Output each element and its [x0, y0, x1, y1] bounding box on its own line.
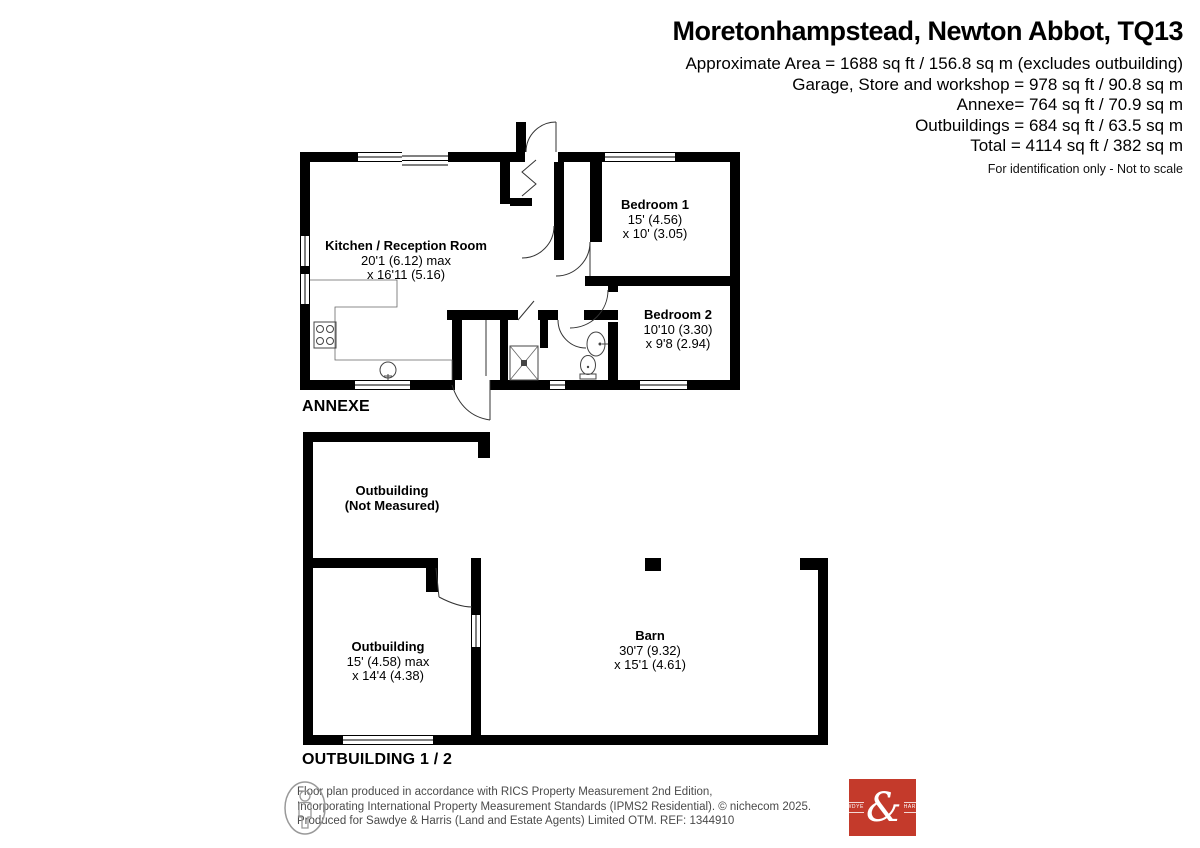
barn-name: Barn — [635, 628, 665, 643]
footer: Floor plan produced in accordance with R… — [283, 779, 811, 829]
area-line-total: Total = 4114 sq ft / 382 sq m — [672, 136, 1183, 157]
page-title: Moretonhampstead, Newton Abbot, TQ13 — [672, 16, 1183, 46]
person-icon — [283, 779, 329, 837]
bedroom2-name: Bedroom 2 — [644, 307, 712, 322]
kitchen-dim2: x 16'11 (5.16) — [367, 267, 445, 282]
outbuilding-top-name: Outbuilding — [356, 483, 429, 498]
agency-logo: SAWDYE & HARRIS — [849, 779, 916, 836]
shower-icon — [510, 346, 538, 380]
outbuilding-top-dim1: (Not Measured) — [345, 498, 440, 513]
annexe-floorplan: Kitchen / Reception Room 20'1 (6.12) max… — [288, 108, 748, 428]
washbasin-icon — [587, 332, 608, 356]
footer-text: Floor plan produced in accordance with R… — [297, 779, 811, 829]
sink-icon — [380, 362, 396, 380]
outbuilding-left-dim2: x 14'4 (4.38) — [352, 668, 424, 683]
outbuilding-label: OUTBUILDING 1 / 2 — [302, 751, 452, 769]
area-summary: Approximate Area = 1688 sq ft / 156.8 sq… — [672, 54, 1183, 157]
outbuilding-floorplan: Outbuilding (Not Measured) Outbuilding 1… — [288, 425, 848, 755]
area-line-garage: Garage, Store and workshop = 978 sq ft /… — [672, 75, 1183, 96]
bedroom1-dim1: 15' (4.56) — [628, 212, 683, 227]
barn-dim2: x 15'1 (4.61) — [614, 657, 686, 672]
bedroom2-dim1: 10'10 (3.30) — [644, 322, 713, 337]
logo-right-text: HARRIS — [904, 802, 927, 813]
toilet-icon — [580, 356, 596, 380]
area-line-outbuildings: Outbuildings = 684 sq ft / 63.5 sq m — [672, 116, 1183, 137]
bedroom1-name: Bedroom 1 — [621, 197, 689, 212]
kitchen-counter — [310, 280, 452, 380]
annexe-windows — [301, 152, 688, 390]
bedroom2-dim2: x 9'8 (2.94) — [646, 336, 711, 351]
bedroom1-dim2: x 10' (3.05) — [623, 226, 688, 241]
barn-dim1: 30'7 (9.32) — [619, 643, 681, 658]
kitchen-name: Kitchen / Reception Room — [325, 238, 487, 253]
footer-line-2: Incorporating International Property Mea… — [297, 800, 811, 815]
outbuilding-room-labels: Outbuilding (Not Measured) Outbuilding 1… — [345, 483, 686, 683]
annexe-room-labels: Kitchen / Reception Room 20'1 (6.12) max… — [325, 197, 712, 351]
outbuilding-left-dim1: 15' (4.58) max — [347, 654, 430, 669]
kitchen-dim1: 20'1 (6.12) max — [361, 253, 451, 268]
footer-line-3: Produced for Sawdye & Harris (Land and E… — [297, 814, 811, 829]
outbuilding-left-name: Outbuilding — [352, 639, 425, 654]
footer-line-1: Floor plan produced in accordance with R… — [297, 785, 811, 800]
annexe-doors — [452, 122, 608, 420]
logo-left-text: SAWDYE — [839, 802, 864, 813]
ampersand-icon: & — [866, 788, 902, 828]
header: Moretonhampstead, Newton Abbot, TQ13 App… — [672, 16, 1183, 176]
outbuilding-walls — [303, 432, 828, 745]
floorplan-page: Moretonhampstead, Newton Abbot, TQ13 App… — [0, 0, 1200, 848]
disclaimer-text: For identification only - Not to scale — [672, 162, 1183, 176]
stove-icon — [314, 322, 336, 348]
outbuilding-doors — [436, 568, 472, 607]
area-line-annexe: Annexe= 764 sq ft / 70.9 sq m — [672, 95, 1183, 116]
area-line-approximate: Approximate Area = 1688 sq ft / 156.8 sq… — [672, 54, 1183, 75]
annexe-label: ANNEXE — [302, 398, 370, 416]
